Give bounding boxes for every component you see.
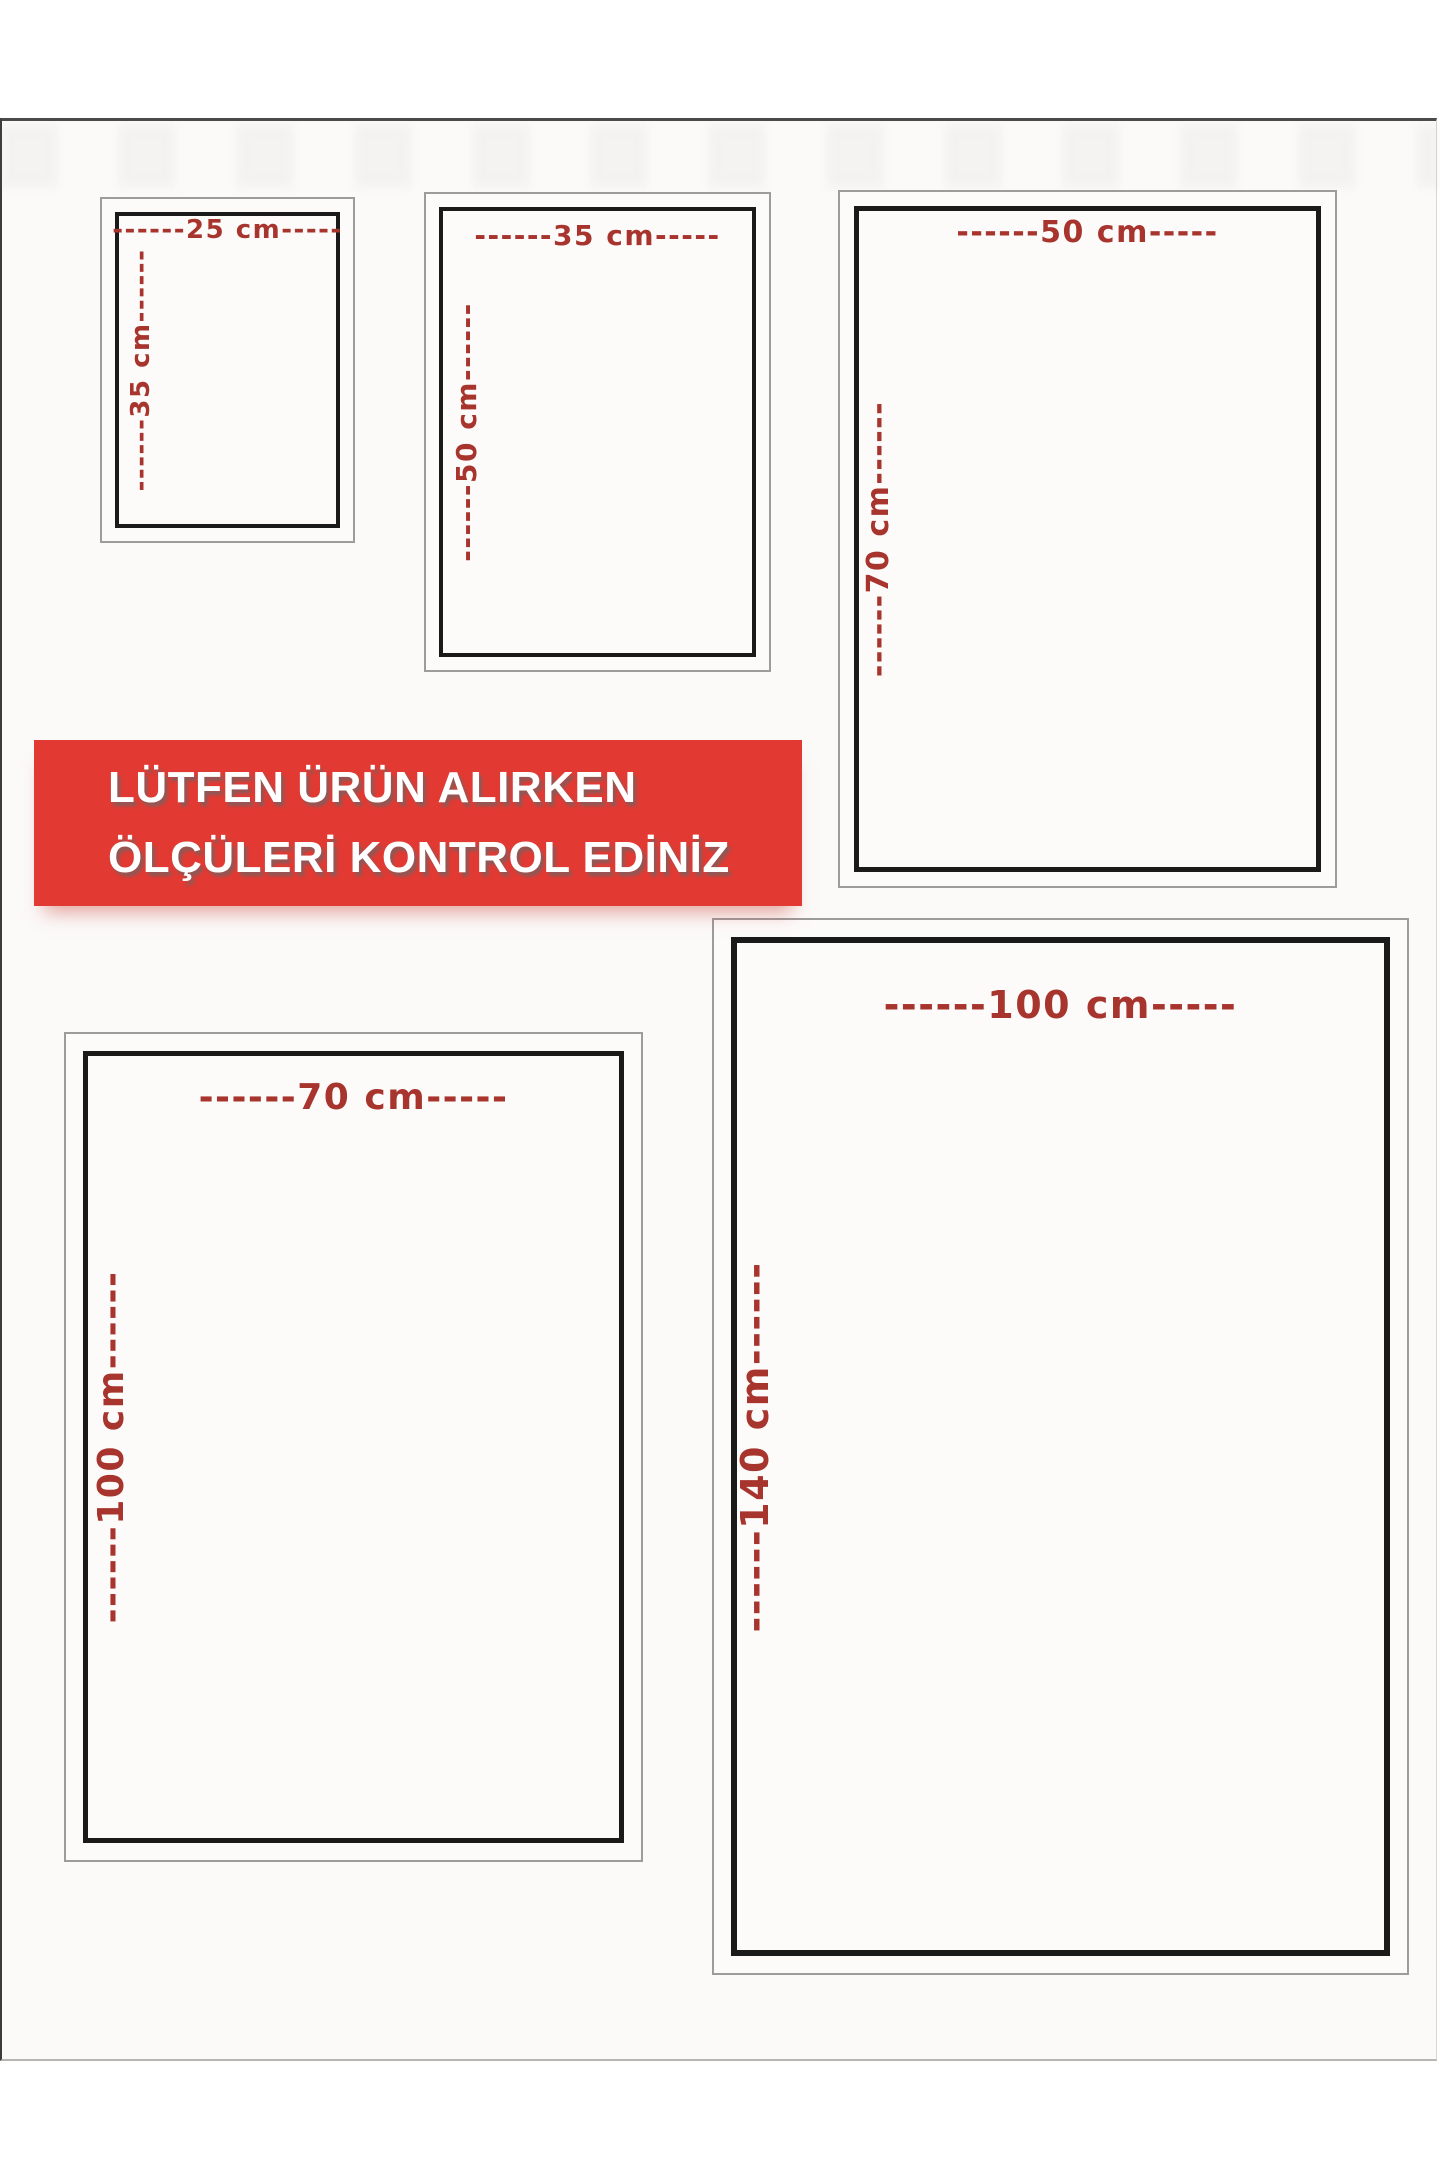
- inner-frame: [731, 937, 1390, 1956]
- warning-banner: LÜTFEN ÜRÜN ALIRKEN ÖLÇÜLERİ KONTROL EDİ…: [34, 740, 802, 906]
- warning-line-2: ÖLÇÜLERİ KONTROL EDİNİZ: [108, 836, 802, 880]
- height-dimension-label: ------70 cm------: [864, 401, 894, 677]
- height-dimension-label: ------35 cm------: [128, 249, 154, 492]
- width-dimension-label: ------35 cm-----: [426, 222, 769, 250]
- height-dimension-label: ------140 cm------: [736, 1261, 774, 1632]
- size-box-70x100: ------70 cm----- ------100 cm------: [64, 1032, 643, 1862]
- size-chart-image: ------25 cm----- ------35 cm------ -----…: [0, 0, 1440, 2160]
- width-dimension-label: ------70 cm-----: [66, 1080, 641, 1116]
- size-box-35x50: ------35 cm----- ------50 cm------: [424, 192, 771, 672]
- size-box-50x70: ------50 cm----- ------70 cm------: [838, 190, 1337, 888]
- inner-frame: [854, 206, 1321, 872]
- width-dimension-label: ------50 cm-----: [840, 218, 1335, 248]
- size-box-100x140: ------100 cm----- ------140 cm------: [712, 918, 1409, 1975]
- page-edge-smudge: [0, 124, 1440, 188]
- inner-frame: [83, 1051, 624, 1843]
- warning-line-1: LÜTFEN ÜRÜN ALIRKEN: [108, 766, 802, 810]
- width-dimension-label: ------100 cm-----: [714, 986, 1407, 1024]
- height-dimension-label: ------50 cm------: [453, 302, 481, 561]
- width-dimension-label: ------25 cm-----: [102, 217, 353, 243]
- size-box-25x35: ------25 cm----- ------35 cm------: [100, 197, 355, 543]
- height-dimension-label: ------100 cm------: [94, 1271, 130, 1624]
- inner-frame: [439, 207, 756, 657]
